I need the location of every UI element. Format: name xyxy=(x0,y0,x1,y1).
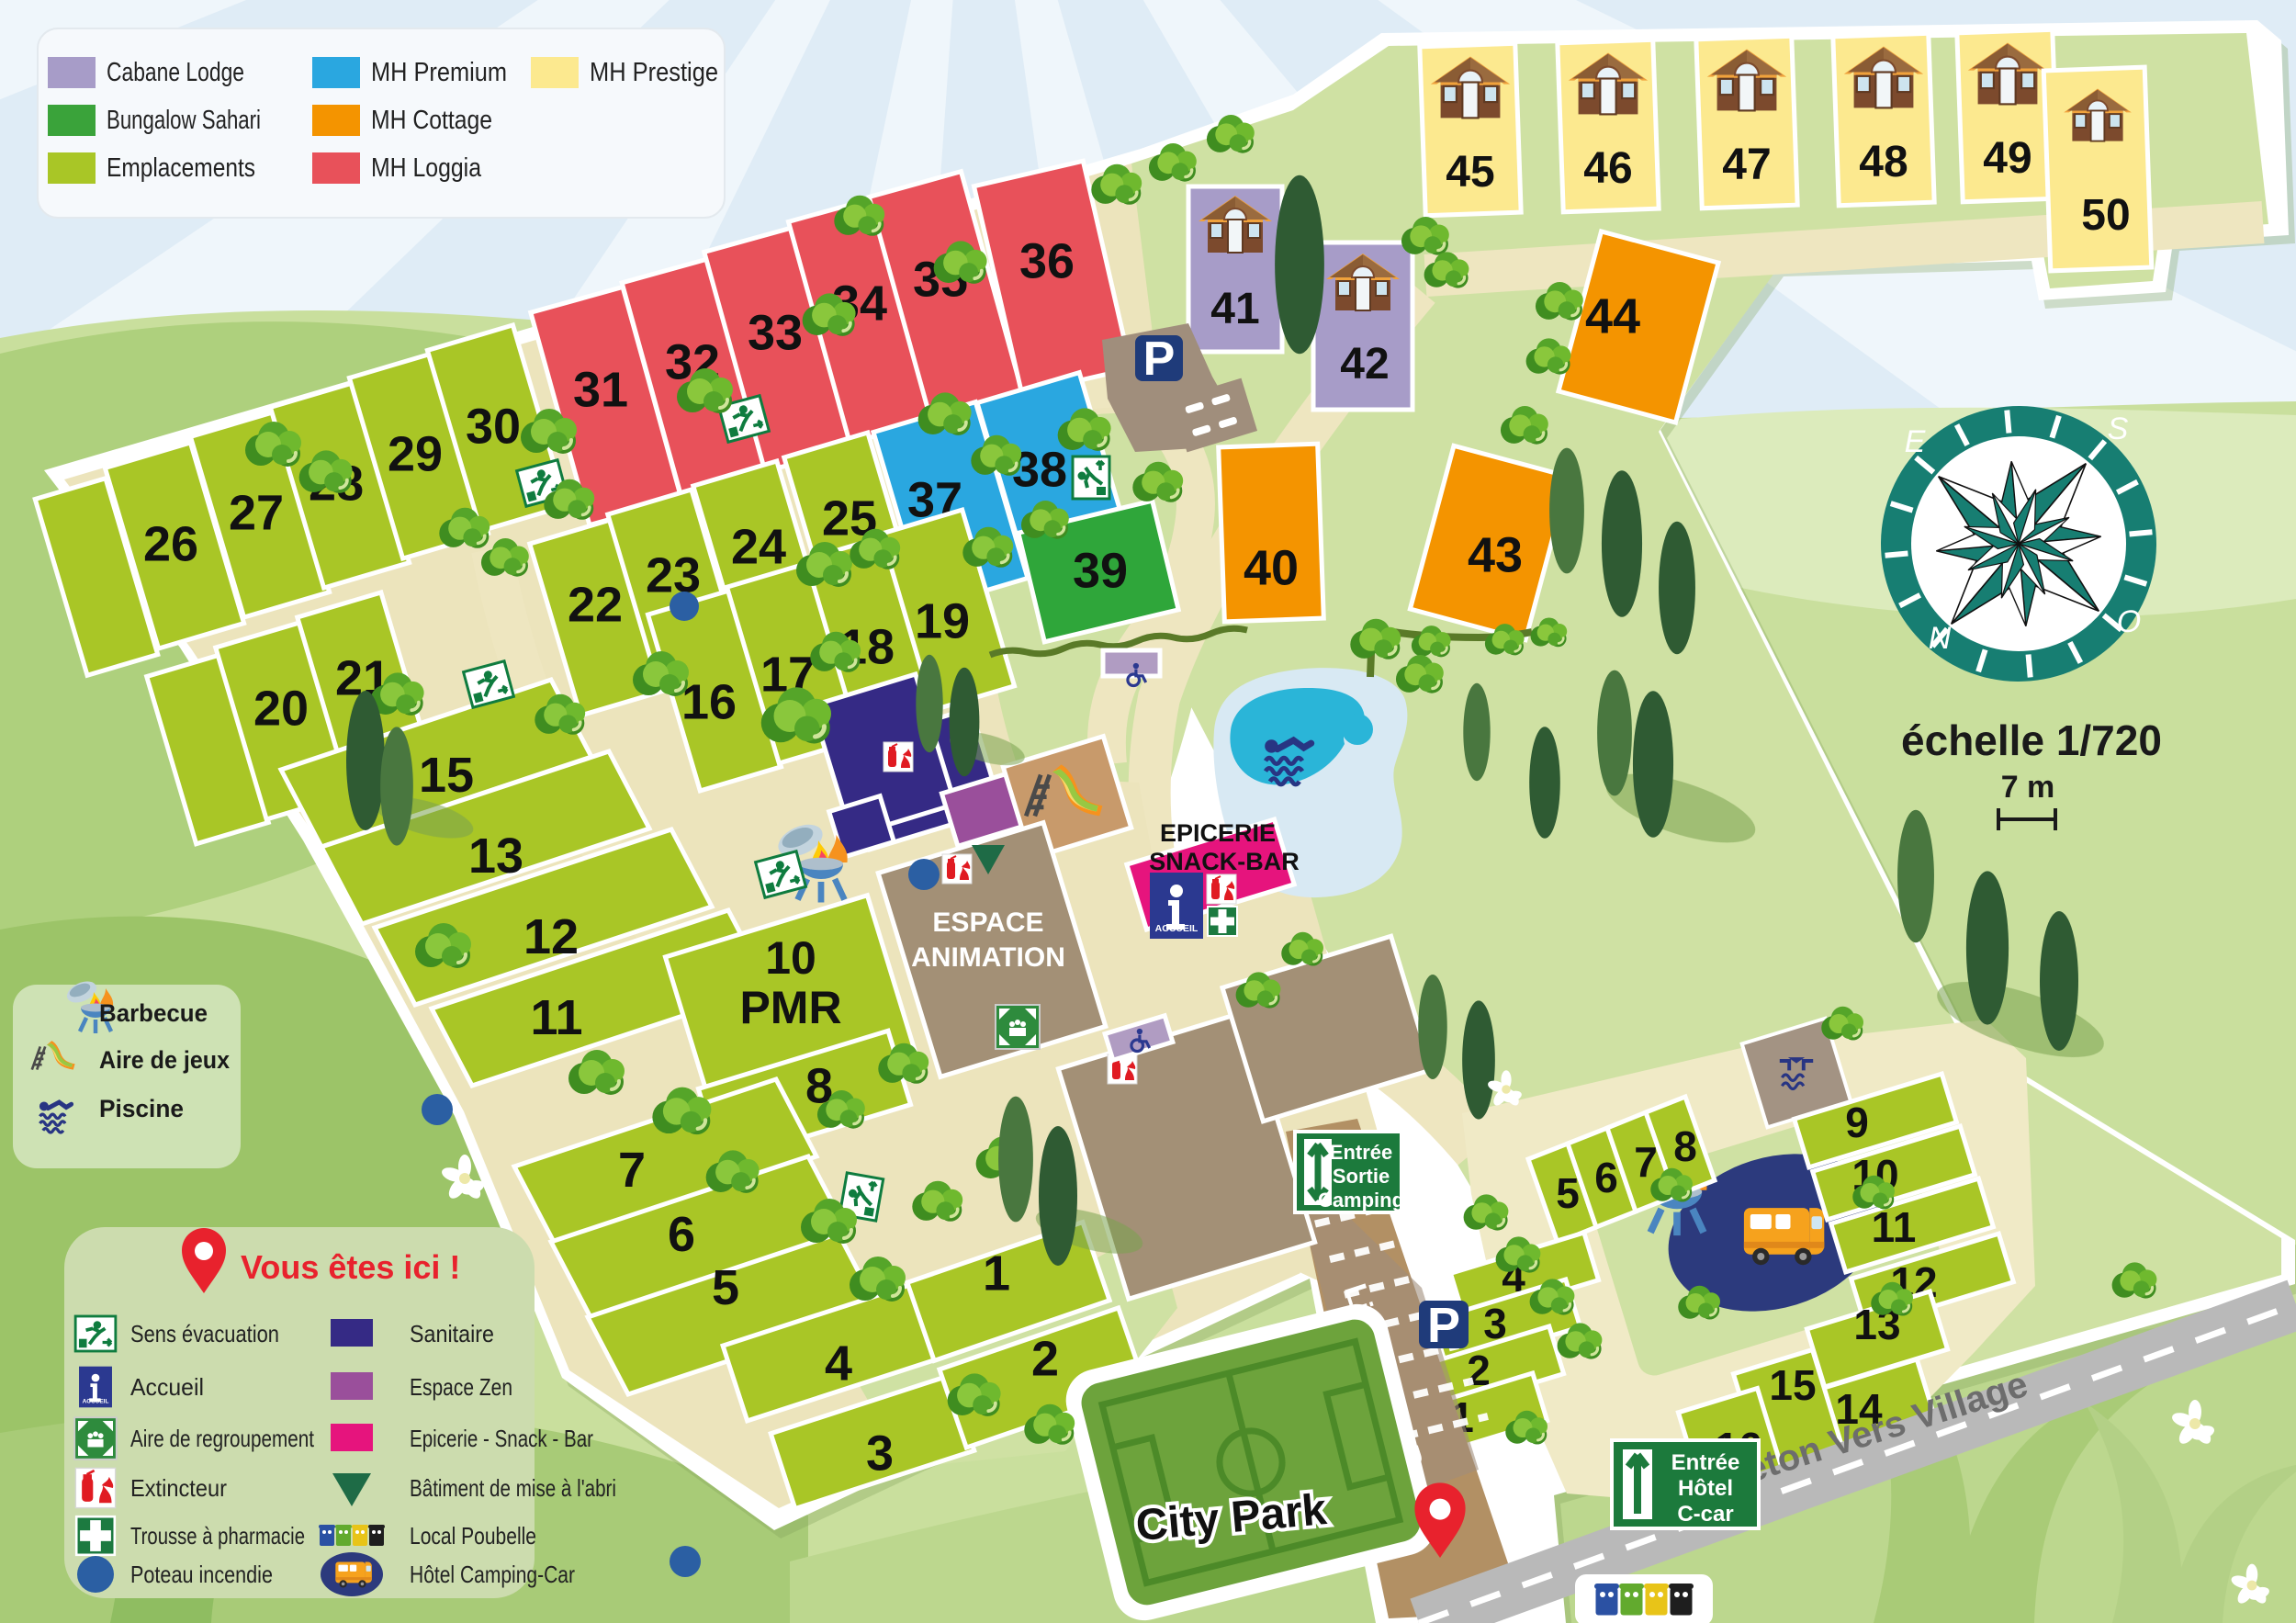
svg-text:8: 8 xyxy=(1673,1122,1697,1170)
svg-text:5: 5 xyxy=(1556,1169,1580,1217)
svg-text:10: 10 xyxy=(765,932,816,984)
svg-text:2: 2 xyxy=(1031,1331,1059,1386)
svg-text:Barbecue: Barbecue xyxy=(99,999,208,1027)
svg-text:C-car: C-car xyxy=(1677,1502,1733,1527)
svg-text:11: 11 xyxy=(1872,1203,1917,1251)
svg-text:MH Premium: MH Premium xyxy=(371,58,507,87)
svg-text:7 m: 7 m xyxy=(2001,770,2055,805)
svg-text:Extincteur: Extincteur xyxy=(130,1474,227,1502)
svg-text:Espace Zen: Espace Zen xyxy=(410,1373,512,1401)
svg-text:29: 29 xyxy=(388,426,443,481)
svg-text:36: 36 xyxy=(1019,233,1075,288)
svg-text:P: P xyxy=(1143,332,1176,386)
svg-text:MH Cottage: MH Cottage xyxy=(371,106,492,135)
svg-text:47: 47 xyxy=(1722,141,1771,189)
svg-text:Epicerie - Snack - Bar: Epicerie - Snack - Bar xyxy=(410,1425,593,1452)
svg-text:Bâtiment de mise à l'abri: Bâtiment de mise à l'abri xyxy=(410,1474,616,1502)
svg-text:24: 24 xyxy=(731,519,786,574)
svg-text:41: 41 xyxy=(1210,285,1259,333)
svg-text:Aire de regroupement: Aire de regroupement xyxy=(130,1425,315,1452)
svg-text:Bungalow Sahari: Bungalow Sahari xyxy=(107,106,261,135)
svg-text:échelle 1/720: échelle 1/720 xyxy=(1901,716,2162,764)
svg-text:7: 7 xyxy=(618,1143,646,1198)
svg-text:49: 49 xyxy=(1983,134,2032,183)
svg-text:33: 33 xyxy=(748,305,803,360)
svg-text:Aire de jeux: Aire de jeux xyxy=(99,1046,230,1074)
svg-text:Cabane Lodge: Cabane Lodge xyxy=(107,58,244,87)
svg-text:13: 13 xyxy=(468,828,523,884)
svg-text:Hôtel Camping-Car: Hôtel Camping-Car xyxy=(410,1561,575,1588)
svg-text:50: 50 xyxy=(2081,191,2130,240)
svg-text:20: 20 xyxy=(253,681,309,736)
svg-text:43: 43 xyxy=(1468,527,1523,582)
svg-text:Local Poubelle: Local Poubelle xyxy=(410,1522,536,1550)
svg-text:22: 22 xyxy=(568,577,623,632)
svg-text:P: P xyxy=(1427,1298,1460,1353)
svg-text:Vous êtes ici !: Vous êtes ici ! xyxy=(241,1248,460,1286)
svg-text:6: 6 xyxy=(1594,1154,1618,1201)
svg-text:Sortie: Sortie xyxy=(1333,1165,1390,1188)
svg-text:16: 16 xyxy=(681,674,737,729)
svg-text:4: 4 xyxy=(825,1336,852,1391)
svg-text:Sanitaire: Sanitaire xyxy=(410,1320,494,1347)
svg-text:Accueil: Accueil xyxy=(130,1373,204,1401)
svg-text:5: 5 xyxy=(712,1260,739,1315)
svg-text:Piscine: Piscine xyxy=(99,1095,184,1122)
svg-text:15: 15 xyxy=(1769,1361,1816,1409)
svg-text:12: 12 xyxy=(523,909,579,964)
svg-text:Emplacements: Emplacements xyxy=(107,153,255,183)
svg-text:15: 15 xyxy=(419,748,474,803)
svg-text:45: 45 xyxy=(1446,148,1494,197)
svg-text:39: 39 xyxy=(1073,543,1128,598)
svg-text:31: 31 xyxy=(573,362,628,417)
svg-text:MH Loggia: MH Loggia xyxy=(371,153,482,183)
svg-text:Poteau incendie: Poteau incendie xyxy=(130,1561,273,1588)
svg-text:E: E xyxy=(1905,424,1926,459)
svg-text:Entrée: Entrée xyxy=(1330,1141,1392,1164)
svg-text:11: 11 xyxy=(530,990,582,1045)
svg-text:26: 26 xyxy=(143,516,198,571)
svg-text:7: 7 xyxy=(1634,1138,1658,1186)
svg-text:30: 30 xyxy=(466,399,521,454)
svg-text:PMR: PMR xyxy=(739,982,841,1033)
svg-text:ESPACE: ESPACE xyxy=(932,907,1043,938)
svg-text:Camping: Camping xyxy=(1318,1189,1404,1212)
svg-text:27: 27 xyxy=(229,485,284,540)
svg-text:S: S xyxy=(2108,411,2129,446)
svg-text:Hôtel: Hôtel xyxy=(1678,1476,1733,1501)
svg-text:3: 3 xyxy=(866,1426,894,1481)
svg-text:MH Prestige: MH Prestige xyxy=(590,58,718,87)
svg-text:Entrée: Entrée xyxy=(1671,1450,1740,1475)
svg-text:SNACK-BAR: SNACK-BAR xyxy=(1149,848,1300,875)
svg-text:42: 42 xyxy=(1340,340,1389,389)
svg-text:ANIMATION: ANIMATION xyxy=(911,942,1065,973)
svg-text:48: 48 xyxy=(1859,138,1908,186)
svg-text:N: N xyxy=(1929,621,1952,656)
svg-text:Sens évacuation: Sens évacuation xyxy=(130,1320,279,1347)
svg-text:EPICERIE: EPICERIE xyxy=(1160,819,1276,847)
svg-text:44: 44 xyxy=(1585,288,1640,344)
svg-text:6: 6 xyxy=(668,1207,695,1262)
svg-text:Trousse à pharmacie: Trousse à pharmacie xyxy=(130,1522,305,1550)
svg-text:40: 40 xyxy=(1244,540,1299,595)
svg-text:O: O xyxy=(2117,604,2141,639)
svg-text:9: 9 xyxy=(1845,1099,1869,1146)
svg-text:46: 46 xyxy=(1583,144,1632,193)
svg-text:1: 1 xyxy=(983,1245,1010,1301)
svg-text:19: 19 xyxy=(915,593,970,648)
